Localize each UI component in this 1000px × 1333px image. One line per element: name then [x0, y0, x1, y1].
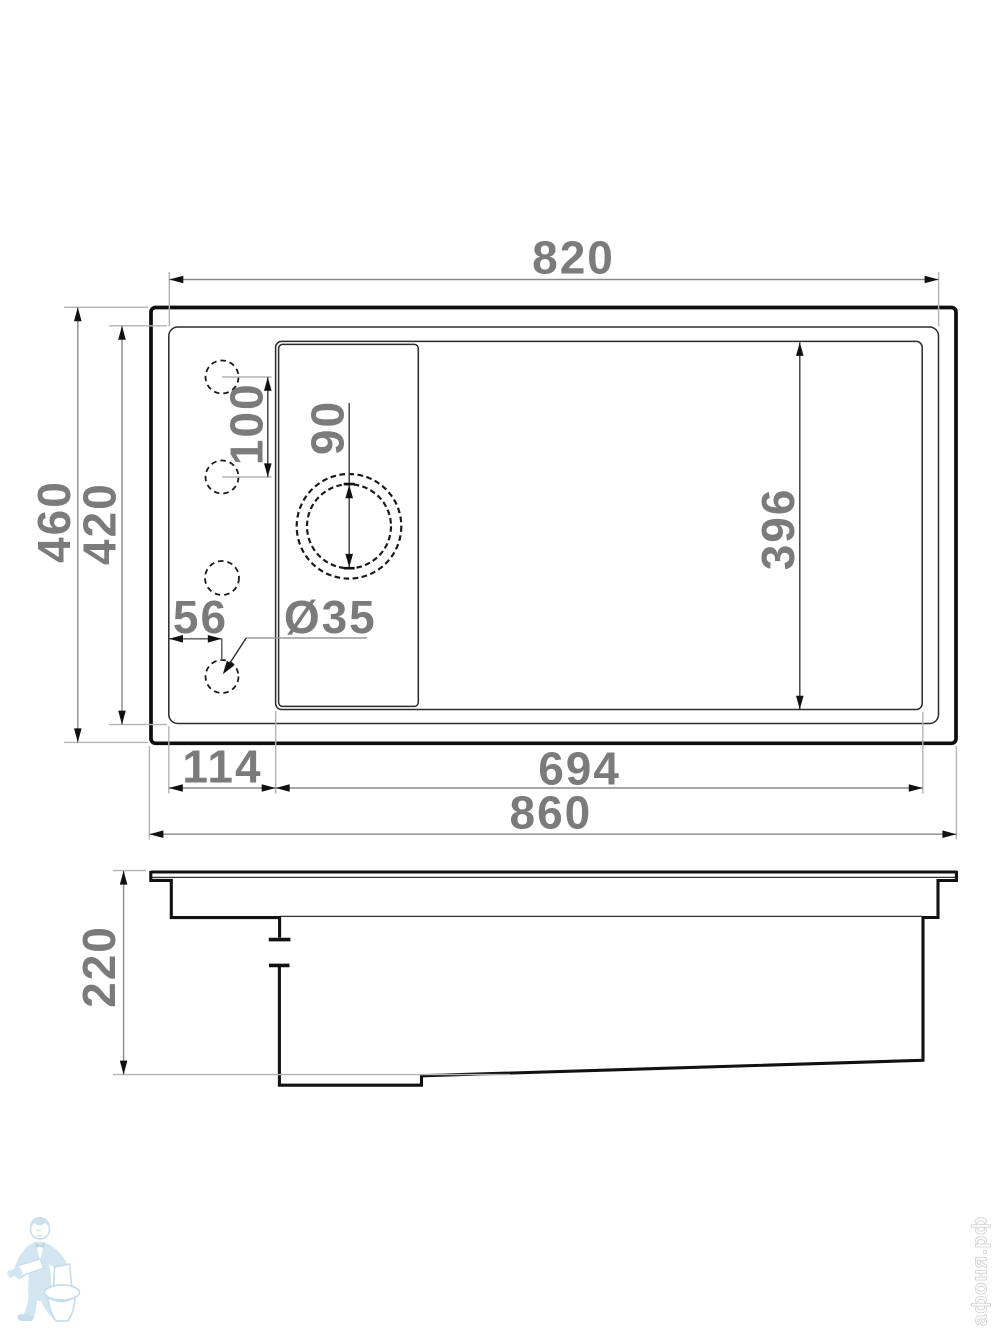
svg-text:460: 460	[28, 480, 80, 563]
svg-text:100: 100	[221, 382, 273, 465]
svg-text:90: 90	[302, 400, 354, 455]
svg-text:114: 114	[182, 740, 262, 792]
svg-text:396: 396	[752, 488, 804, 571]
svg-text:Ø35: Ø35	[284, 591, 377, 643]
svg-text:афоня.рф: афоня.рф	[969, 1216, 992, 1326]
svg-text:820: 820	[532, 232, 615, 284]
svg-text:860: 860	[510, 786, 593, 838]
svg-text:56: 56	[173, 591, 228, 643]
svg-text:420: 420	[73, 482, 125, 565]
svg-text:220: 220	[73, 925, 125, 1008]
